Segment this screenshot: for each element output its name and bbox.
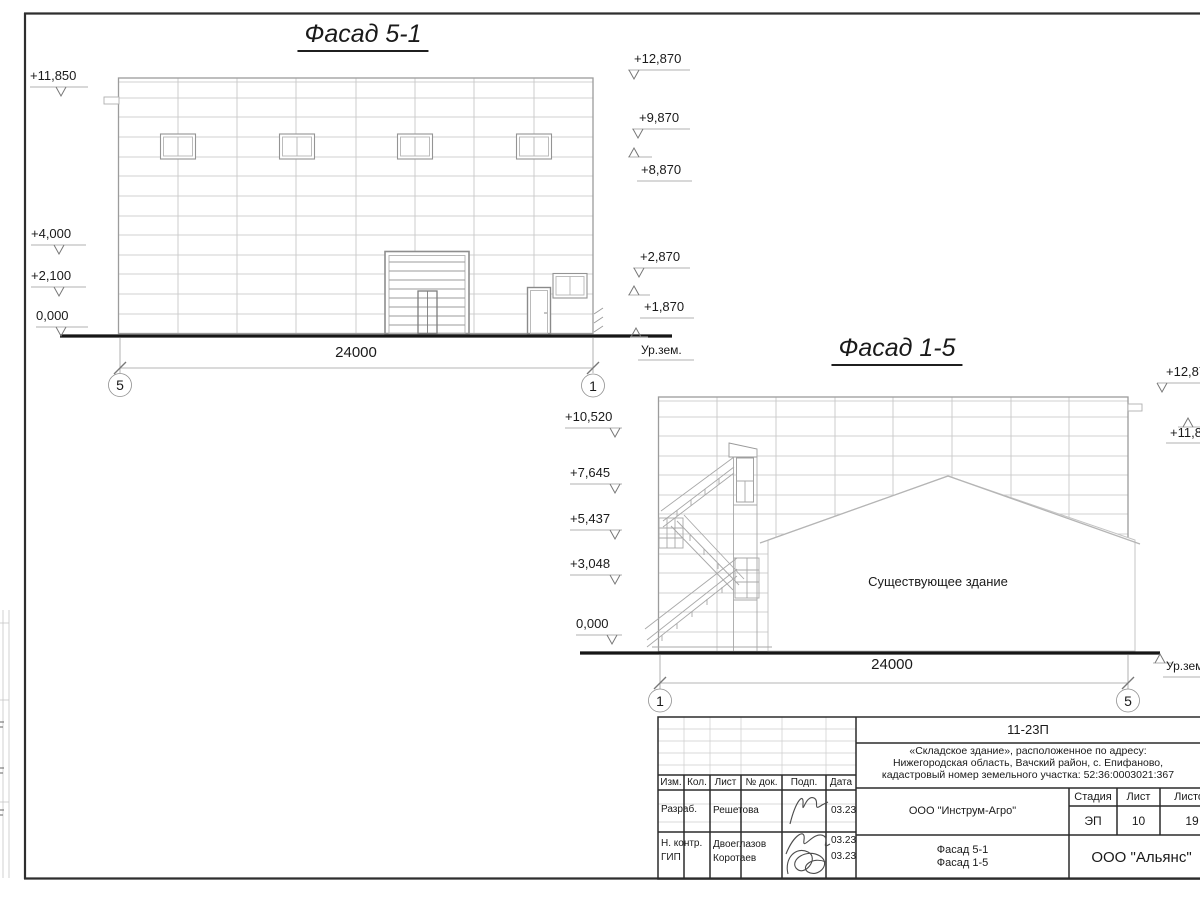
elevation-mark: +12,870 (1166, 365, 1200, 378)
elevation-mark: +1,870 (644, 300, 684, 313)
dimension-label: 24000 (871, 657, 913, 672)
drawing-sheet: { "facade_5_1": { "title": "Фасад 5-1", … (0, 0, 1200, 900)
col-data: Дата (826, 778, 856, 788)
fire-escape-stair (645, 443, 772, 651)
col-kol: Кол. (684, 778, 710, 788)
elevation-mark: +9,870 (639, 111, 679, 124)
elevation-mark: +3,048 (570, 557, 610, 570)
project-address-line: «Складское здание», расположенное по адр… (856, 746, 1200, 757)
axis-bubble-5: 5 (107, 378, 133, 392)
elevation-mark: +10,520 (565, 410, 612, 423)
col-izm: Изм. (658, 778, 684, 788)
elevation-mark: +11,850 (30, 69, 76, 82)
role-nkontr: Н. контр. (661, 839, 702, 849)
elevation-mark: +8,870 (641, 163, 681, 176)
signature-scribbles (786, 798, 830, 874)
role-gip: ГИП (661, 853, 681, 863)
elevation-mark: +2,100 (31, 269, 71, 282)
existing-building-outline (760, 476, 1140, 651)
date-razrab: 03.23 (831, 806, 856, 816)
name-razrab: Решетова (713, 806, 759, 816)
elevation-mark: 0,000 (576, 617, 609, 630)
ground-level-label: Ур.зем. (1166, 660, 1200, 672)
sheet-number: 10 (1117, 815, 1160, 827)
ground-level-label: Ур.зем. (641, 344, 682, 356)
sheets-header: Листов (1160, 792, 1200, 803)
side-stamp-fragment (0, 610, 9, 878)
elevation-mark: +12,870 (634, 52, 681, 65)
gutter-detail (1128, 404, 1142, 411)
stage-value: ЭП (1069, 815, 1117, 827)
col-list: Лист (710, 778, 741, 788)
existing-building-label: Существующее здание (868, 575, 1008, 588)
role-razrab: Разраб. (661, 805, 697, 815)
sheet-content-line: Фасад 1-5 (856, 858, 1069, 869)
col-podp: Подп. (782, 778, 826, 788)
gutter-detail (104, 97, 119, 104)
axis-bubble-1: 1 (580, 379, 606, 393)
stage-header: Стадия (1069, 792, 1117, 803)
contractor-name: ООО "Альянс" (1069, 850, 1200, 865)
elevation-mark: +5,437 (570, 512, 610, 525)
project-address-line: кадастровый номер земельного участка: 52… (856, 770, 1200, 781)
facade-5-1-door (528, 288, 551, 334)
axis-bubble-1: 1 (647, 694, 673, 708)
elevation-mark: +4,000 (31, 227, 71, 240)
elevation-mark-icons-left (30, 87, 88, 336)
facade-5-1-small-window (553, 274, 587, 299)
facade-5-1-gate (385, 252, 469, 334)
date-gip: 03.23 (831, 852, 856, 862)
elevation-mark: +2,870 (640, 250, 680, 263)
doc-code: 11-23П (856, 723, 1200, 736)
name-gip: Коротаев (713, 854, 756, 864)
col-ndok: № док. (741, 778, 782, 788)
dimension-label: 24000 (335, 345, 377, 360)
axis-bubble-5: 5 (1115, 694, 1141, 708)
sheets-total: 19 (1160, 815, 1200, 827)
sheet-content-line: Фасад 5-1 (856, 845, 1069, 856)
elevation-mark: +11,850 (1170, 426, 1200, 439)
facade-1-5-title: Фасад 1-5 (831, 336, 962, 366)
date-nkontr: 03.23 (831, 836, 856, 846)
elevation-mark: 0,000 (36, 309, 69, 322)
project-address-line: Нижегородская область, Вачский район, с.… (856, 758, 1200, 769)
name-nkontr: Двоеглазов (713, 840, 766, 850)
facade-5-1-title: Фасад 5-1 (297, 22, 428, 52)
client-name: ООО "Инструм-Агро" (856, 806, 1069, 817)
elevation-mark: +7,645 (570, 466, 610, 479)
elevation-mark-icons-left (565, 428, 622, 644)
sheet-header: Лист (1117, 792, 1160, 803)
